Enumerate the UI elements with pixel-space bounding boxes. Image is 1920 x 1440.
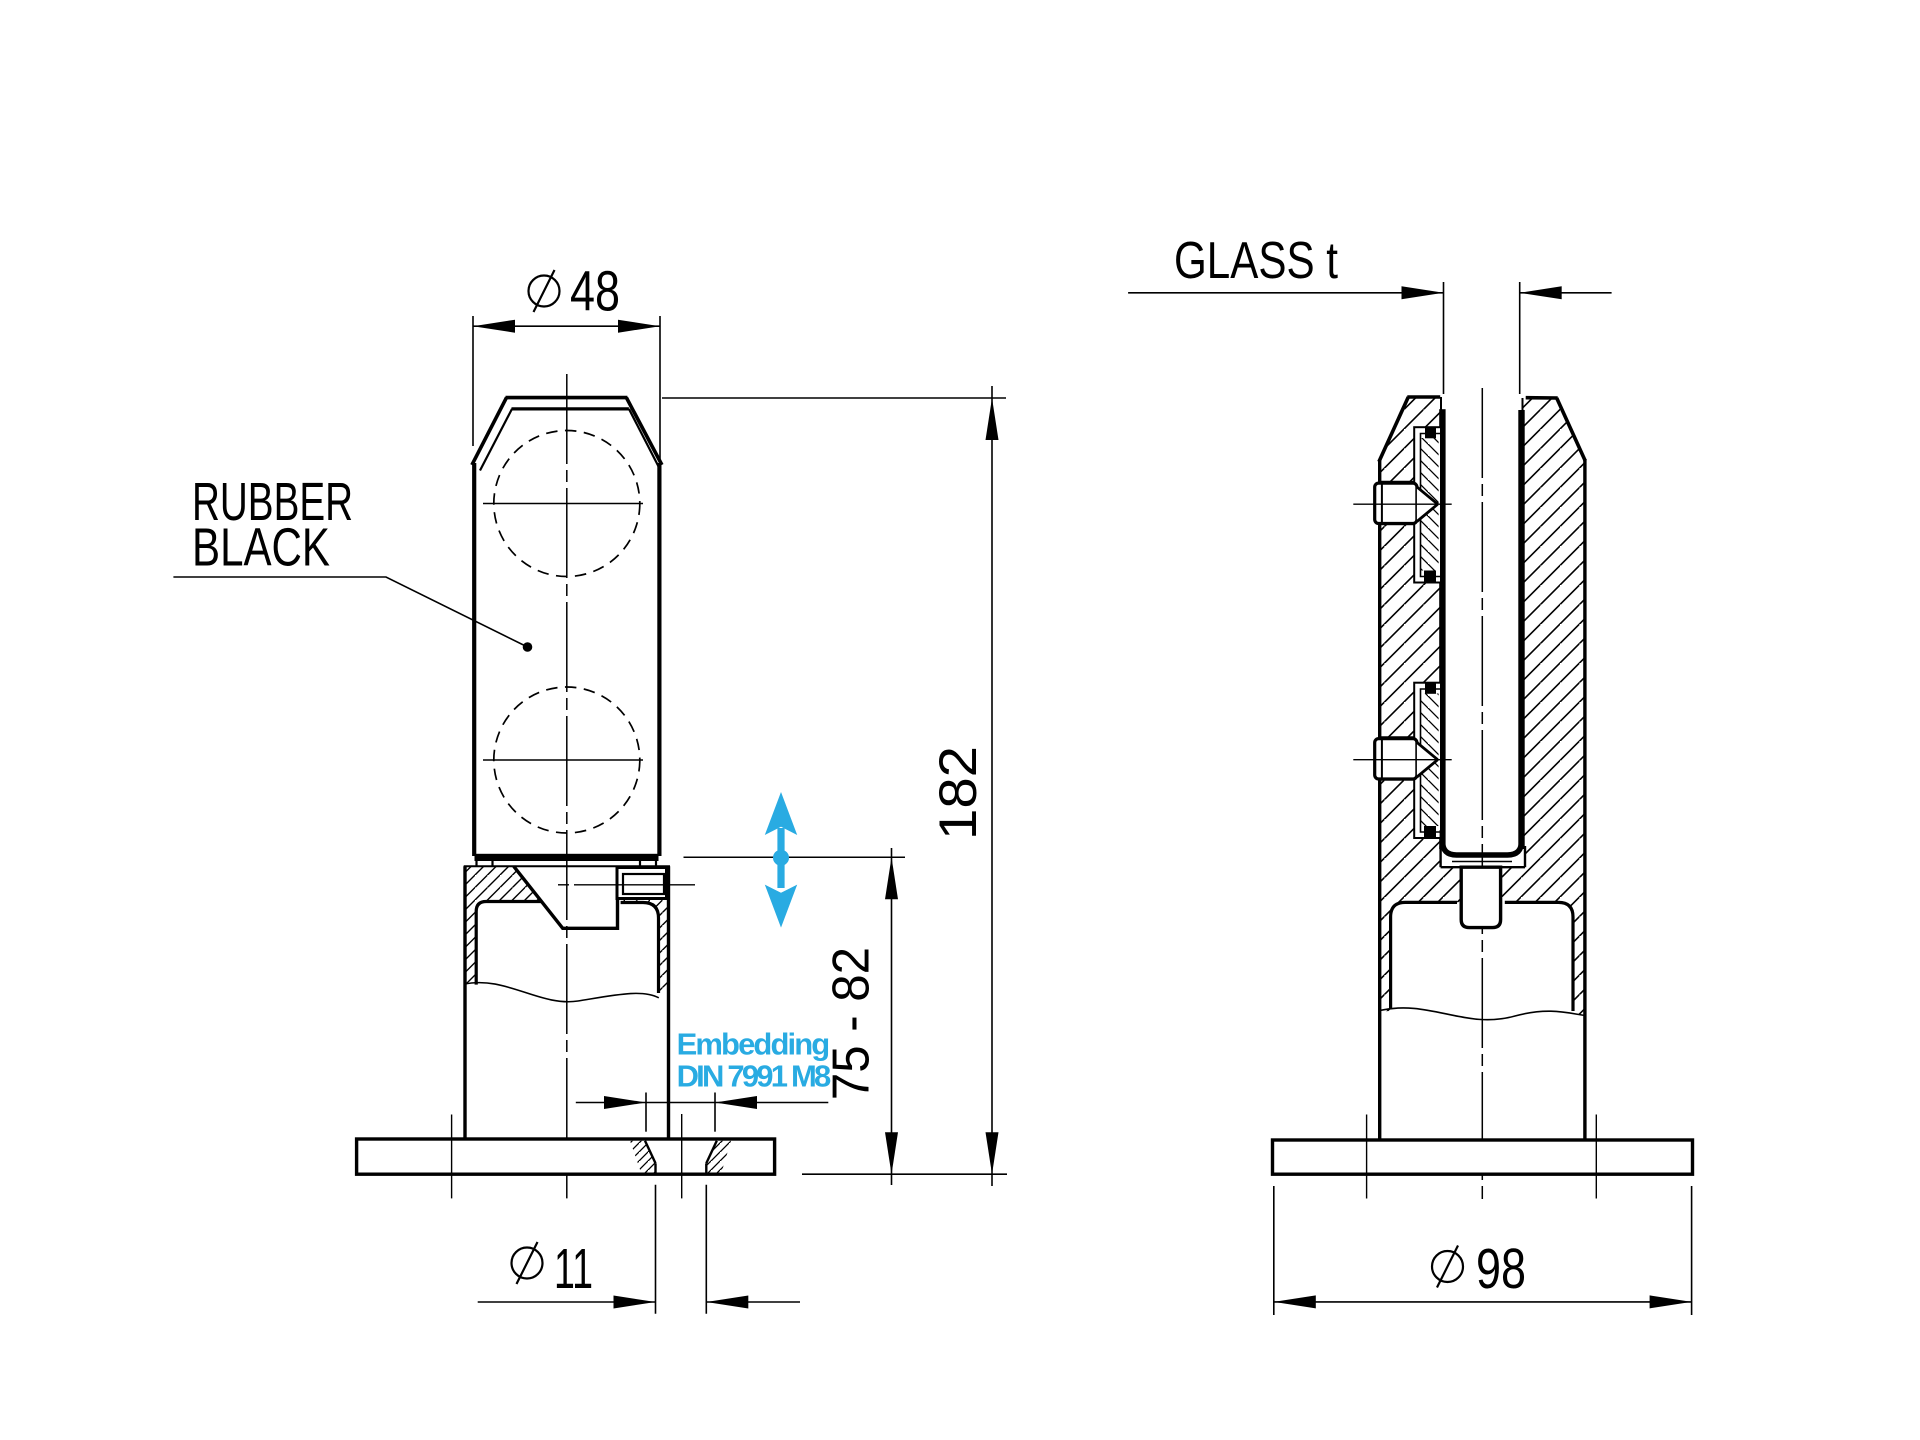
svg-text:98: 98 <box>1476 1237 1526 1301</box>
svg-text:Embedding: Embedding <box>677 1027 829 1062</box>
svg-text:BLACK: BLACK <box>192 518 330 578</box>
svg-text:DIN 7991 M8: DIN 7991 M8 <box>677 1059 831 1094</box>
svg-text:75 - 82: 75 - 82 <box>823 947 881 1100</box>
svg-text:GLASS t: GLASS t <box>1174 232 1338 290</box>
svg-text:48: 48 <box>570 260 620 324</box>
svg-text:182: 182 <box>929 746 988 840</box>
svg-text:11: 11 <box>554 1237 593 1301</box>
